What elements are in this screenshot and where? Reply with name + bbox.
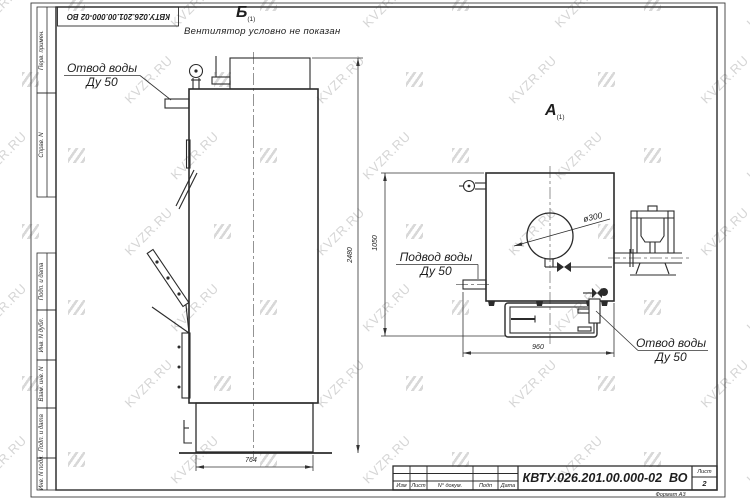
side-stamp-label: Подп. и дата (37, 408, 47, 458)
callout-outlet-right-line1: Отвод воды (634, 336, 708, 350)
view-b-label: Б(1) (236, 4, 255, 23)
callout-inlet-line1: Подвод воды (394, 250, 478, 264)
valve-handwheel (600, 288, 608, 296)
title-block-col-docnum: N° докум. (427, 482, 473, 490)
view-b-sub: (1) (247, 16, 255, 23)
title-block-col-podp: Подп (473, 482, 498, 490)
format-label: Формат А3 (633, 491, 708, 499)
view-a-letter: А (545, 102, 557, 119)
view-a-sub: (1) (557, 114, 565, 121)
callout-inlet-line2: Ду 50 (394, 264, 478, 278)
side-stamp-label: Взам. инв. N (37, 360, 47, 408)
callout-outlet-right-line2: Ду 50 (634, 350, 708, 364)
callout-outlet-left: Отвод воды Ду 50 (64, 61, 140, 89)
title-block-sheet-number: 2 (692, 479, 717, 488)
dim-front-width: 764 (231, 457, 271, 464)
side-view (459, 173, 682, 337)
side-stamp-label: Справ. N (37, 93, 47, 197)
flue-box (230, 58, 310, 89)
drawing-sheet: KVZR.RUKVZR.RUKVZR.RUKVZR.RUKVZR.RUKVZR.… (0, 0, 750, 500)
title-block-col-list: Лист (410, 482, 427, 490)
front-view (147, 56, 332, 453)
side-stamp-label: Инв. N дубл. (37, 310, 47, 360)
dim-side-width: 960 (518, 344, 558, 351)
callout-outlet-left-line1: Отвод воды (64, 61, 140, 75)
side-stamp-label: Подп. и дата (37, 253, 47, 310)
side-stamp-label: Инв. N подл. (37, 458, 47, 490)
view-b-letter: Б (236, 4, 247, 21)
view-a-label: А(1) (545, 102, 565, 121)
title-block-col-data: Дата (498, 482, 518, 490)
boiler-base-front (196, 403, 313, 452)
dim-side-height: 1050 (371, 230, 381, 256)
callout-inlet: Подвод воды Ду 50 (394, 250, 478, 278)
outlet-plate (589, 299, 600, 323)
view-b-note: Вентилятор условно не показан (184, 26, 340, 37)
callout-outlet-left-line2: Ду 50 (64, 75, 140, 89)
title-block-col-izm: Изм (393, 482, 410, 490)
top-stamp-designation: КВТУ.026.201.00.000-02 ВО (58, 7, 179, 26)
outlet-pipe-front (165, 99, 189, 108)
dim-front-height: 2480 (346, 242, 356, 268)
leader-lines (64, 76, 708, 351)
callout-outlet-right: Отвод воды Ду 50 (634, 336, 708, 364)
title-block-designation: КВТУ.026.201.00.000-02 ВО (518, 466, 692, 490)
side-stamp-label: Перв. примен. (37, 7, 47, 93)
title-block-sheet-label: Лист (692, 468, 717, 476)
